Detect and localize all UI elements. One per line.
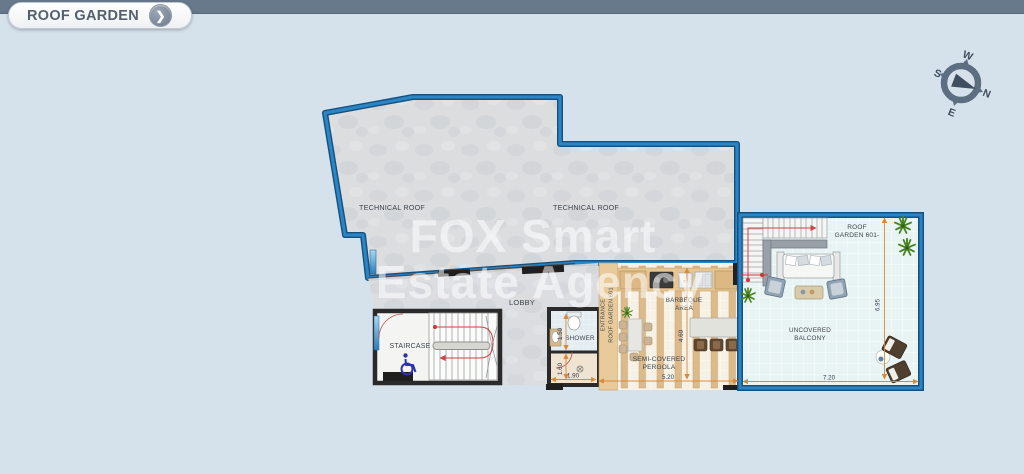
dim-balcony-length: 7.20 bbox=[823, 374, 836, 381]
stair-handrail bbox=[433, 342, 490, 350]
balcony-label-2: BALCONY bbox=[794, 335, 826, 342]
watermark-line-1: FOX Smart bbox=[410, 210, 657, 262]
roof-garden-label-2: GARDEN 601- bbox=[835, 232, 880, 239]
balcony-label-1: UNCOVERED bbox=[789, 327, 831, 334]
coffee-table bbox=[795, 286, 823, 299]
dim-shower-length: 1.90 bbox=[567, 373, 580, 380]
roof-garden-label-1: ROOF bbox=[847, 224, 867, 231]
pergola-label-2: PERGOLA bbox=[643, 364, 676, 371]
stairs-main bbox=[429, 313, 497, 380]
dim-pergola-depth: 4.60 bbox=[678, 329, 685, 342]
floor-plan: TECHNICAL ROOF TECHNICAL ROOF LOBBY bbox=[0, 0, 1024, 474]
armchair bbox=[764, 276, 785, 297]
dim-balcony-depth: 6.95 bbox=[875, 298, 882, 311]
watermark-line-2: Estate Agency bbox=[376, 256, 704, 308]
dim-shower-width: 1.50 bbox=[557, 327, 564, 340]
roof-garden-area: ROOF GARDEN 601- bbox=[740, 215, 921, 388]
staircase-room: STAIRCASE bbox=[374, 311, 500, 383]
watermark: FOX Smart Estate Agency bbox=[376, 210, 704, 308]
armchair bbox=[827, 279, 848, 300]
sofa-set bbox=[764, 252, 847, 299]
shower-label: SHOWER bbox=[565, 335, 595, 342]
pergola-label-1: SEMI-COVERED bbox=[633, 356, 686, 363]
dim-pergola-length: 5.20 bbox=[662, 374, 675, 381]
bar-island bbox=[690, 318, 739, 351]
floor-plan-page: ROOF GARDEN ❯ W S N E bbox=[0, 0, 1024, 474]
staircase-label: STAIRCASE bbox=[390, 343, 431, 350]
dim-wc-width: 1.60 bbox=[557, 362, 564, 375]
